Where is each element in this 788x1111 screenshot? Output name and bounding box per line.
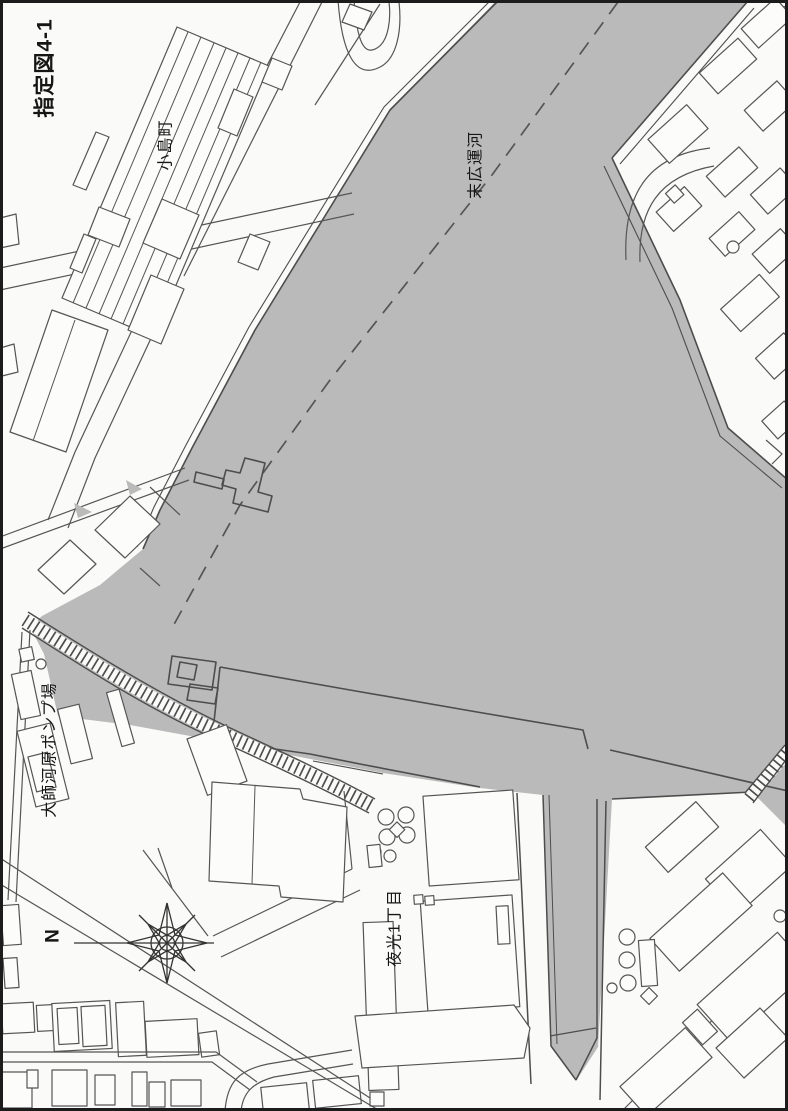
compass-rose [74, 903, 214, 983]
southeast-buildings [607, 802, 788, 1111]
north-district-label: 小島町 [157, 119, 175, 170]
south-district-buildings [209, 782, 530, 1111]
pump-station-label: 大師河原ポンプ場 [41, 682, 59, 818]
map-sheet: 指定図4-1 小島町 末広運河 大師河原ポンプ場 夜光1丁目 N [0, 0, 788, 1111]
title-label: 指定図4-1 [33, 18, 57, 117]
map-canvas: 指定図4-1 小島町 末広運河 大師河原ポンプ場 夜光1丁目 N [0, 0, 788, 1111]
canal-label: 末広運河 [467, 131, 485, 199]
south-district-label: 夜光1丁目 [386, 889, 404, 967]
compass-north-label: N [43, 929, 64, 943]
